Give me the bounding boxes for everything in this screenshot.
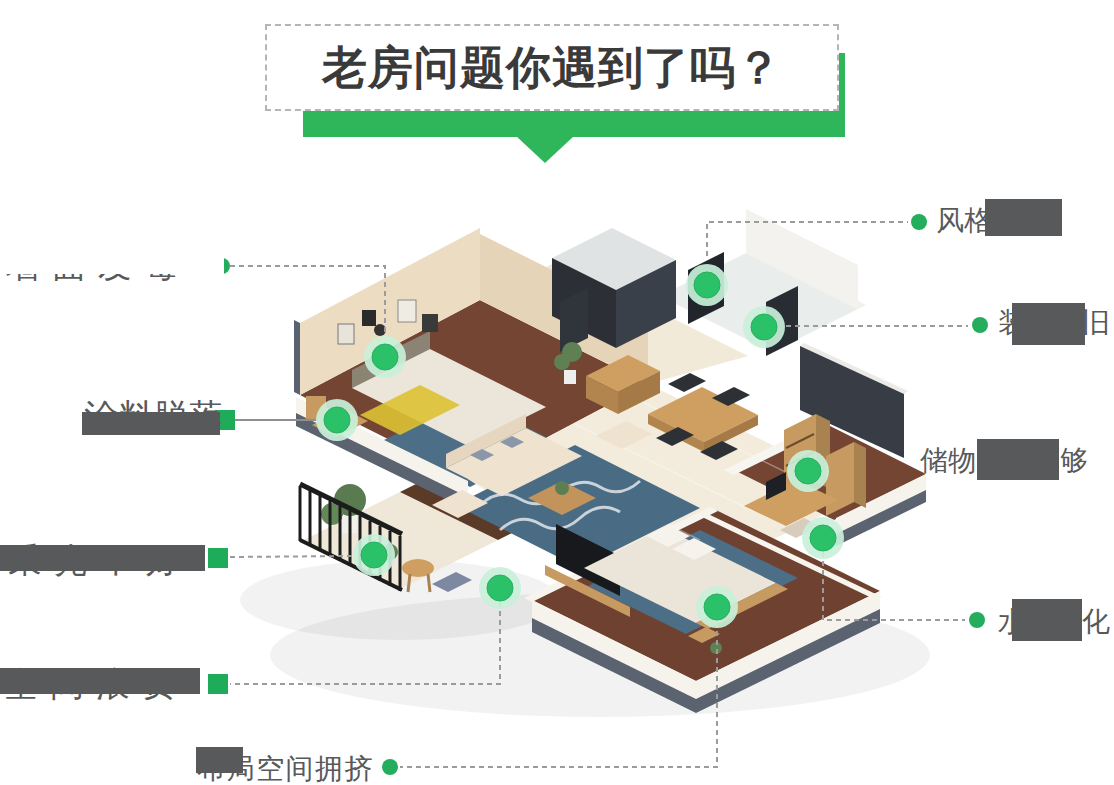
marker-wasted-space <box>479 567 521 609</box>
label-mask <box>1012 303 1085 345</box>
label-mask <box>0 545 205 571</box>
label-mask <box>196 747 243 773</box>
label-mask <box>0 228 224 274</box>
marker-poor-lighting <box>353 534 395 576</box>
marker-crowded-layout <box>696 586 738 628</box>
marker-paint-peeling <box>316 399 358 441</box>
label-mask <box>985 199 1062 236</box>
marker-storage-short <box>787 450 829 492</box>
marker-wall-mold <box>364 336 406 378</box>
label-mask <box>1012 599 1082 641</box>
label-mask <box>1062 195 1114 240</box>
infographic: 墙面发霉 涂料脱落 风格老旧 装修老旧 储物空间不够 水电老化 采光不好 空间浪… <box>0 0 1114 785</box>
label-mask <box>82 412 220 435</box>
marker-style-outdated <box>686 264 728 306</box>
label-mask <box>0 668 200 694</box>
marker-reno-outdated <box>743 306 785 348</box>
label-mask <box>977 439 1059 480</box>
marker-pipes-aging <box>802 517 844 559</box>
